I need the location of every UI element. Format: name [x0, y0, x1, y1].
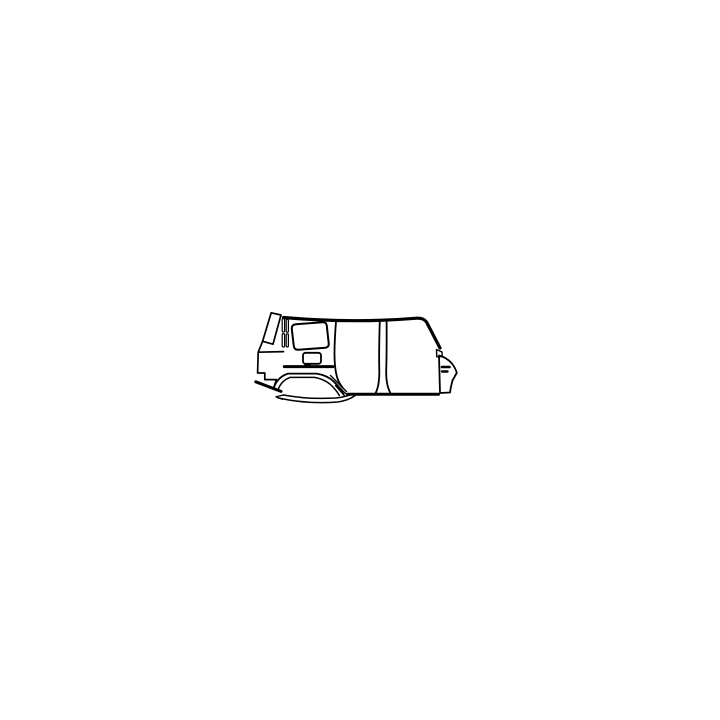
roof-and-a-pillar-line [284, 318, 441, 349]
fuel-door-outline [303, 353, 321, 364]
arch-lip-fold [276, 395, 284, 399]
channel-strip-upper-right [286, 319, 288, 332]
front-fender-outline [439, 356, 457, 394]
page-background: { "illustration": { "description": "Blac… [0, 0, 720, 720]
wheel-arch-inner [278, 377, 340, 395]
rear-door-gap-line [334, 322, 342, 388]
d-pillar-outline [263, 313, 281, 344]
arch-lip-upper [284, 394, 353, 399]
channel-strip-upper-left [282, 319, 284, 332]
b-pillar-left-line [376, 321, 380, 393]
quarter-window-outline [292, 322, 329, 349]
rear-lower-step-outline [258, 341, 284, 388]
illustration-canvas [0, 0, 720, 720]
vehicle-side-panel-line-art [0, 0, 720, 720]
channel-strip-lower-right [286, 334, 288, 347]
b-pillar-right-line [386, 321, 390, 393]
channel-strip-lower-left [282, 334, 284, 347]
